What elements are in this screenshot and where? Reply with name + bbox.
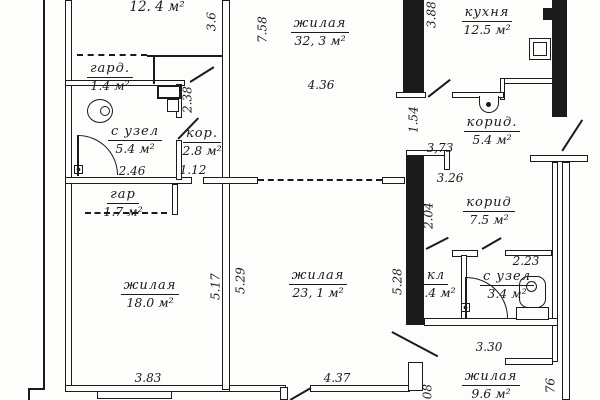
wall-bottom-door-jamb bbox=[280, 387, 288, 400]
room-label-suzel2: с узел 3.4 м² bbox=[472, 265, 542, 302]
dim-2-23: 2.23 bbox=[509, 255, 543, 268]
room-area-top-left: 12. 4 м² bbox=[112, 0, 202, 16]
door-line-balcony bbox=[561, 119, 582, 151]
dim-08: 08 bbox=[421, 380, 434, 400]
kitchen-sink-dot-icon bbox=[486, 102, 491, 107]
dim-1-12: 1.12 bbox=[176, 164, 210, 177]
dim-2-38: 2.38 bbox=[181, 80, 194, 120]
dim-7-58: 7.58 bbox=[256, 8, 269, 52]
vent-shaft-small-icon bbox=[167, 99, 179, 112]
dim-5-29: 5.29 bbox=[234, 258, 247, 304]
wall-central bbox=[222, 0, 230, 390]
room-label-gar: гар 1.7 м² bbox=[95, 183, 151, 220]
wall-bottom-left-step-v bbox=[28, 388, 30, 400]
wall-outer-left-line bbox=[43, 0, 45, 390]
wall-bottom-center-2 bbox=[310, 385, 410, 392]
wall-mid-stub-left bbox=[203, 177, 258, 184]
room-label-zh32: жилая 32, 3 м² bbox=[280, 12, 360, 49]
wall-bottom-center-1 bbox=[229, 385, 286, 392]
door-line-kl bbox=[426, 237, 449, 250]
wall-bottom-left-step-h bbox=[28, 388, 45, 390]
room-label-zh96: жилая 9.6 м² bbox=[452, 365, 530, 400]
wall-thick-top bbox=[403, 0, 424, 96]
dim-3-26: 3.26 bbox=[433, 172, 467, 185]
dim-76: 76 bbox=[544, 374, 557, 398]
door-line-bottom bbox=[290, 387, 312, 400]
room-label-korid54: корид. 5.4 м² bbox=[455, 111, 529, 148]
wall-thick-top-cap bbox=[396, 92, 426, 98]
room-label-kitchen: кухня 12.5 м² bbox=[447, 1, 527, 38]
wall-bottom-recess bbox=[97, 391, 172, 399]
dim-2-04: 2.04 bbox=[422, 196, 435, 236]
dim-5-17: 5.17 bbox=[209, 264, 222, 310]
wall-right-inner bbox=[552, 162, 558, 362]
wall-right-tee bbox=[530, 155, 588, 162]
dim-4-36: 4.36 bbox=[301, 79, 341, 92]
door-line-bath2 bbox=[482, 237, 502, 249]
dash-gard-top bbox=[77, 54, 147, 56]
toilet-dot-icon bbox=[100, 106, 110, 116]
dim-3-30: 3.30 bbox=[468, 341, 510, 354]
dim-3-73: 3,73 bbox=[423, 142, 457, 155]
wall-left bbox=[65, 0, 72, 392]
room-label-kor: кор. 2.8 м² bbox=[176, 122, 228, 159]
room-label-kl: кл 1.4 м² bbox=[416, 264, 456, 301]
wall-gar-right bbox=[172, 184, 178, 215]
dim-2-46: 2.46 bbox=[112, 165, 152, 178]
vent-shaft-icon bbox=[157, 85, 181, 99]
door-pivot-bath1 bbox=[74, 165, 83, 174]
door-pivot-bath2 bbox=[461, 303, 470, 312]
wall-room96-top bbox=[505, 358, 553, 365]
floor-plan: 12. 4 м² гард. 1.4 м² с узел 5.4 м² кор.… bbox=[0, 0, 600, 400]
wall-kitchen-bottom-right bbox=[503, 78, 553, 84]
room-label-suzel1: с узел 5.4 м² bbox=[100, 120, 170, 157]
dim-3-6: 3.6 bbox=[205, 2, 218, 42]
dim-1-54: 1.54 bbox=[407, 100, 420, 140]
wall-mid-stub-right bbox=[382, 177, 405, 184]
room-label-top-left: 12. 4 м² bbox=[112, 0, 202, 16]
door-line-room96 bbox=[392, 331, 439, 357]
dim-3-83: 3.83 bbox=[128, 372, 168, 385]
room-label-zh18: жилая 18.0 м² bbox=[110, 274, 190, 311]
wall-niche-line bbox=[153, 56, 155, 84]
door-line-kitchen bbox=[428, 79, 451, 97]
room-label-zh23: жилая 23, 1 м² bbox=[278, 264, 358, 301]
dim-4-37: 4.37 bbox=[317, 372, 357, 385]
room-label-gard: гард. 1.4 м² bbox=[80, 57, 140, 94]
dim-5-28: 5.28 bbox=[391, 259, 404, 305]
kitchen-vent-icon bbox=[543, 8, 555, 20]
room-label-korid75: корид 7.5 м² bbox=[452, 191, 526, 228]
wall-room124-bottom bbox=[147, 55, 222, 57]
dash-room-divider bbox=[258, 179, 382, 181]
wall-right-outer bbox=[562, 162, 570, 400]
washbasin-icon bbox=[516, 307, 549, 320]
stove-inner-icon bbox=[533, 42, 547, 56]
dim-3-88: 3.88 bbox=[425, 0, 438, 35]
